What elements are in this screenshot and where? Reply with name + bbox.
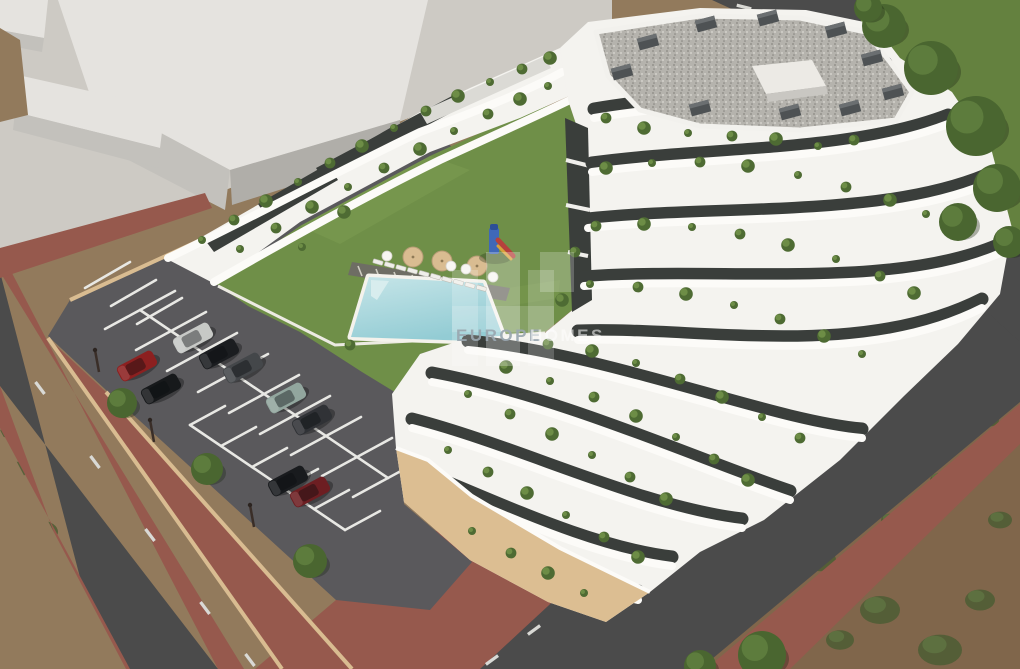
aerial-render: EUROPE HOMES	[0, 0, 1020, 669]
watermark-text-secondary: HOMES	[530, 326, 605, 345]
render-canvas: EUROPE HOMES	[0, 0, 1020, 669]
